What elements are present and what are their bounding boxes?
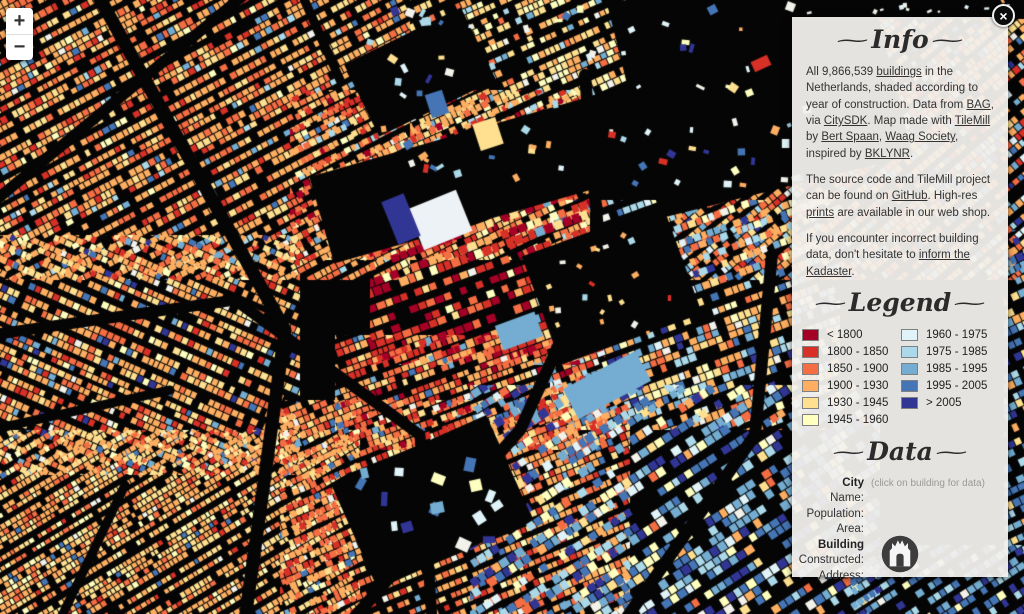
legend-swatch xyxy=(901,363,918,375)
field-label-constructed: Constructed: xyxy=(792,553,864,569)
building-group-label: Building xyxy=(792,538,864,554)
legend-swatch xyxy=(802,329,819,341)
legend-swatch xyxy=(802,346,819,358)
legend-heading: ~Legend~ xyxy=(792,288,1008,317)
info-panel: ~Info~ All 9,866,539 buildings in the Ne… xyxy=(792,17,1008,577)
click-hint: (click on building for data) xyxy=(871,476,985,492)
legend-swatch xyxy=(901,329,918,341)
info-paragraph-3: If you encounter incorrect building data… xyxy=(806,231,994,280)
legend-item: 1995 - 2005 xyxy=(901,378,1000,395)
zoom-control: + − xyxy=(6,8,33,60)
legend-swatch xyxy=(802,397,819,409)
legend-column-red: < 1800 1800 - 1850 1850 - 1900 1900 - 19… xyxy=(802,327,901,429)
legend-label: 1975 - 1985 xyxy=(926,346,987,358)
link-prints[interactable]: prints xyxy=(806,207,834,219)
waag-society-logo[interactable] xyxy=(881,535,919,573)
legend-label: < 1800 xyxy=(827,329,863,341)
zoom-in-button[interactable]: + xyxy=(6,8,33,34)
legend-label: 1995 - 2005 xyxy=(926,380,987,392)
link-buildings[interactable]: buildings xyxy=(876,66,921,78)
field-label-city-area: Area: xyxy=(792,522,864,538)
link-github[interactable]: GitHub xyxy=(892,190,928,202)
city-group-label: City xyxy=(792,476,864,492)
legend-item: 1850 - 1900 xyxy=(802,361,901,378)
legend-column-blue: 1960 - 1975 1975 - 1985 1985 - 1995 1995… xyxy=(901,327,1000,429)
legend-label: 1960 - 1975 xyxy=(926,329,987,341)
tilde-decoration: ~ xyxy=(811,293,850,314)
legend-heading-label: Legend xyxy=(849,288,952,317)
data-heading-label: Data xyxy=(867,437,933,466)
legend-item: > 2005 xyxy=(901,395,1000,412)
text-segment: . Map made with xyxy=(867,115,954,127)
legend-label: 1900 - 1930 xyxy=(827,380,888,392)
text-segment: are available in our web shop. xyxy=(834,207,990,219)
address-value-space xyxy=(792,584,1008,614)
legend-label: 1850 - 1900 xyxy=(827,363,888,375)
legend-label: 1930 - 1945 xyxy=(827,397,888,409)
field-label-population: Population: xyxy=(792,507,864,523)
tilde-decoration: ~ xyxy=(932,442,971,463)
legend-item: 1900 - 1930 xyxy=(802,378,901,395)
text-segment: . xyxy=(910,148,913,160)
text-segment: All 9,866,539 xyxy=(806,66,876,78)
field-label-address: Address: xyxy=(792,569,864,585)
legend-item: < 1800 xyxy=(802,327,901,344)
info-paragraph-1: All 9,866,539 buildings in the Netherlan… xyxy=(806,64,994,162)
legend-swatch xyxy=(802,414,819,426)
legend-label: 1800 - 1850 xyxy=(827,346,888,358)
link-bklynr[interactable]: BKLYNR xyxy=(865,148,910,160)
zoom-out-button[interactable]: − xyxy=(6,34,33,60)
legend-item: 1960 - 1975 xyxy=(901,327,1000,344)
legend-label: > 2005 xyxy=(926,397,962,409)
legend-item: 1975 - 1985 xyxy=(901,344,1000,361)
legend-swatch xyxy=(901,346,918,358)
legend-swatch xyxy=(802,363,819,375)
app-root: + − ~Info~ All 9,866,539 buildings in th… xyxy=(0,0,1024,614)
link-citysdk[interactable]: CitySDK xyxy=(824,115,867,127)
tilde-decoration: ~ xyxy=(829,442,868,463)
legend-label: 1945 - 1960 xyxy=(827,414,888,426)
link-bag[interactable]: BAG xyxy=(966,99,990,111)
text-segment: by xyxy=(806,131,821,143)
tilde-decoration: ~ xyxy=(928,30,967,51)
legend-label: 1985 - 1995 xyxy=(926,363,987,375)
legend-item: 1930 - 1945 xyxy=(802,395,901,412)
info-heading-label: Info xyxy=(871,25,928,54)
legend-item: 1800 - 1850 xyxy=(802,344,901,361)
legend-item: 1985 - 1995 xyxy=(901,361,1000,378)
text-segment: . xyxy=(851,266,854,278)
close-panel-button[interactable]: × xyxy=(992,4,1015,27)
legend-swatch xyxy=(802,380,819,392)
link-waag-society[interactable]: Waag Society xyxy=(885,131,955,143)
info-paragraph-2: The source code and TileMill project can… xyxy=(806,172,994,221)
info-heading: ~Info~ xyxy=(792,25,1008,54)
legend-swatch xyxy=(901,397,918,409)
field-label-name: Name: xyxy=(792,491,864,507)
text-segment: . High-res xyxy=(927,190,977,202)
link-tilemill[interactable]: TileMill xyxy=(955,115,990,127)
legend-item: 1945 - 1960 xyxy=(802,412,901,429)
legend-swatch xyxy=(901,380,918,392)
link-bert-spaan[interactable]: Bert Spaan xyxy=(821,131,879,143)
data-heading: ~Data~ xyxy=(792,437,1008,466)
legend: < 1800 1800 - 1850 1850 - 1900 1900 - 19… xyxy=(802,327,1000,429)
tilde-decoration: ~ xyxy=(950,293,989,314)
tilde-decoration: ~ xyxy=(833,30,872,51)
